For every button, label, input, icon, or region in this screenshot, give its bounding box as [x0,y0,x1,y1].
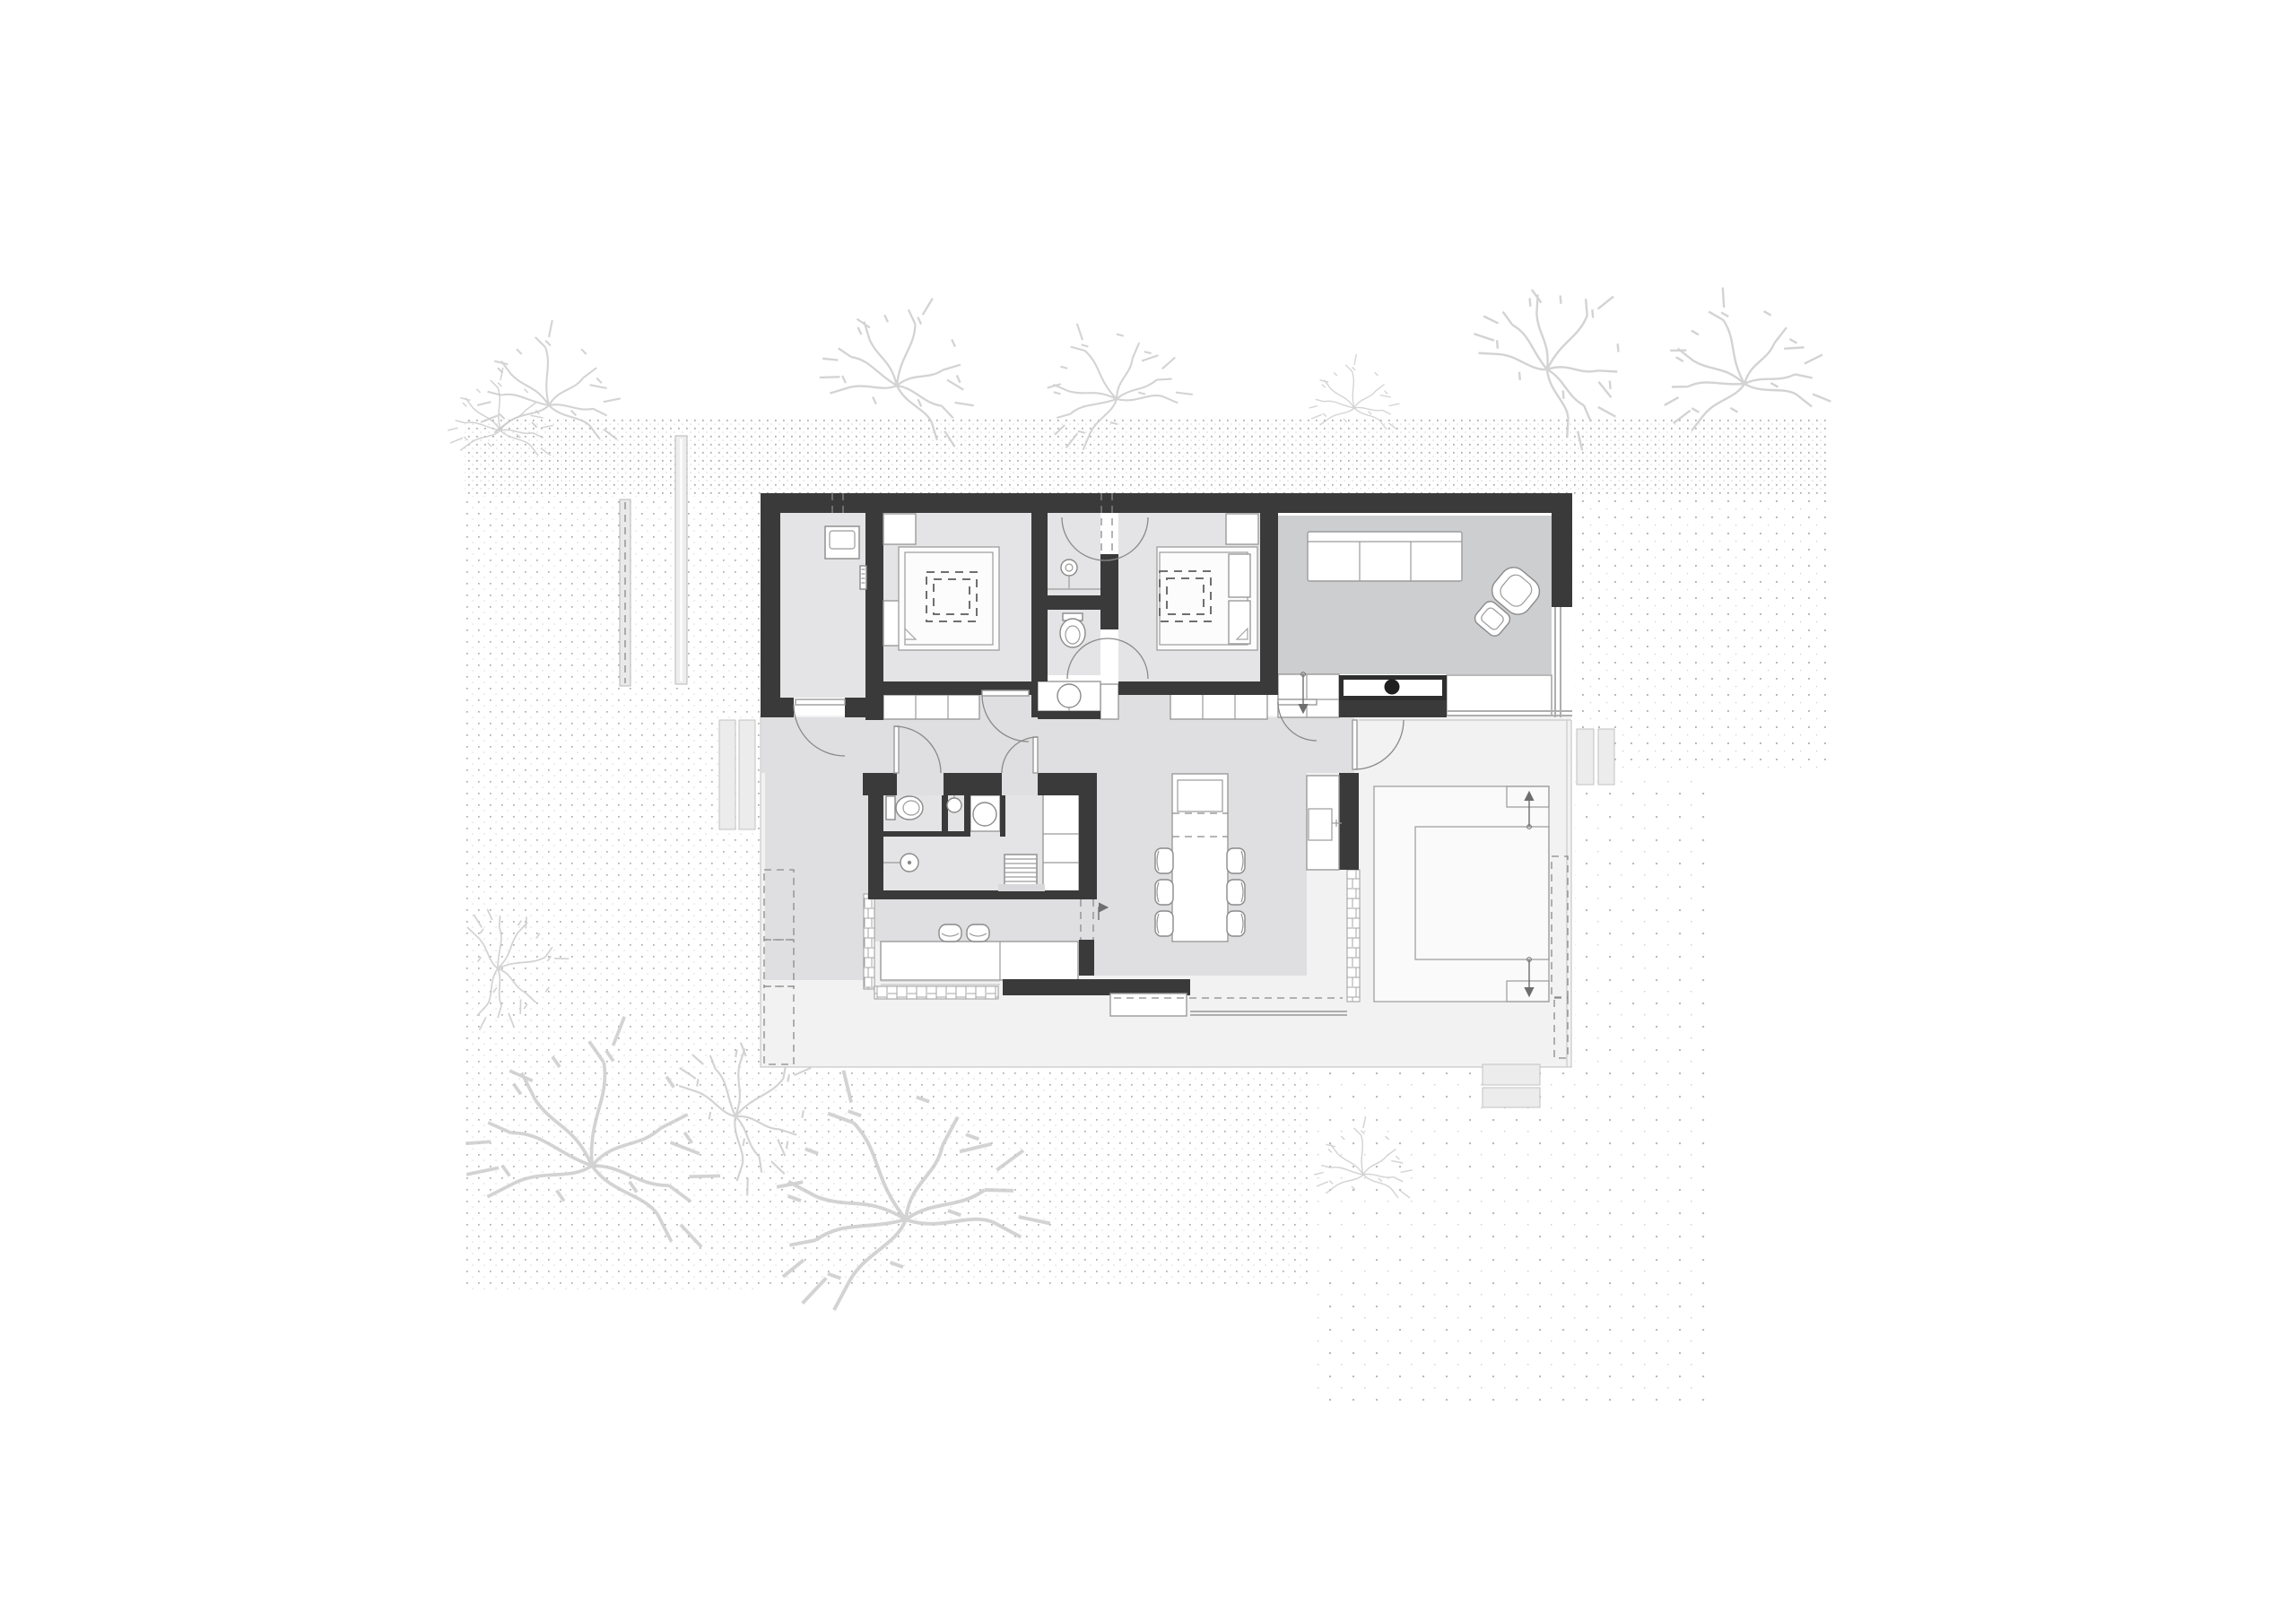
wall-wc-basin-divider [942,795,948,831]
wall-block-west [868,773,883,899]
nightstand [883,514,916,544]
wall-living-east [1552,493,1572,607]
nightstand [1226,514,1258,544]
east-step [1577,729,1594,785]
hall-vanity-niche [1038,681,1100,713]
wall-block-north-b [944,773,1002,795]
dining-chairs-right [1227,848,1245,936]
kitchen-counter [1278,674,1339,717]
wall-bedroom2-south [1118,681,1276,695]
brick-courses [1347,870,1360,1002]
wc-door-gap [897,773,944,795]
wall-counter-divider [1000,795,1005,837]
shower-nozzle [908,861,911,864]
dot-zone-bottom-middle [761,1065,1309,1286]
shower-door-gap [1002,773,1038,795]
outdoor-sink-counter [1307,776,1342,870]
tree-icon [1309,354,1400,430]
floor-plan-drawing [0,0,2296,1623]
ladder-base [998,884,1045,891]
tall-cabinet [1043,791,1079,897]
wall-block-north-c [1038,773,1079,795]
stool [939,924,961,942]
wall-entry-south-a [761,698,794,717]
bedroom2-passage-cell [1100,684,1118,719]
stove-burner-dot [1385,680,1400,695]
toilet [1060,619,1085,647]
bedroom2-door-gap [1118,695,1170,719]
outdoor-bench [881,942,1078,980]
wall-basin-divider [964,795,970,831]
entrance-plank [719,720,735,829]
double-bed [899,547,999,650]
entry-porch-floor [765,717,874,980]
wall-bath-wc-divider [1031,595,1100,610]
pillow [1229,554,1250,597]
dining-chairs-left [1155,848,1173,936]
kitchen-counter-east [1447,675,1552,716]
dot-zone-right-lower [1575,775,1709,1065]
brick-courses [864,894,874,989]
wall-block-south [868,890,1097,899]
tree-icon [1639,267,1834,444]
wall-basin [947,798,961,812]
terrace-step [1483,1088,1540,1107]
entrance-plank [739,720,755,829]
wall-bath-bedroom2 [1100,554,1118,629]
wall-north [761,493,1572,513]
platform-outer [1374,786,1549,1002]
dot-zone-bottom-right [1309,1065,1709,1406]
floor-plan-canvas [0,0,2296,1623]
toilet-tank [886,796,895,820]
sliding-door-panel [1110,994,1187,1016]
dot-zone-top-band [465,420,1828,496]
east-step [1598,729,1614,785]
dining-island-table [1172,774,1228,942]
terrace-step [1483,1064,1540,1085]
sofa [1308,532,1462,581]
wall-vanity-south [1038,711,1100,719]
wall-block-east [1079,773,1097,899]
wall-dining-pier [1079,940,1094,976]
fireplace-stove-block [1339,678,1447,718]
fireplace-back-wall [1339,699,1447,717]
bathroom-upper-floor [1048,513,1100,675]
towel-ladder [1004,855,1037,889]
shower-room-basin-counter [970,795,1000,831]
stool [967,924,989,942]
wall-sink-pier [1339,773,1359,870]
wall-bedroom2-living [1260,513,1278,695]
wall-west [761,493,780,716]
bedroom1-closets [883,695,979,719]
ladder-rungs [1004,859,1037,886]
pedestal-basin [1061,560,1077,576]
brick-courses [874,986,998,999]
wall-row-divider [883,831,970,837]
wall-stub-vanity [1031,681,1038,717]
